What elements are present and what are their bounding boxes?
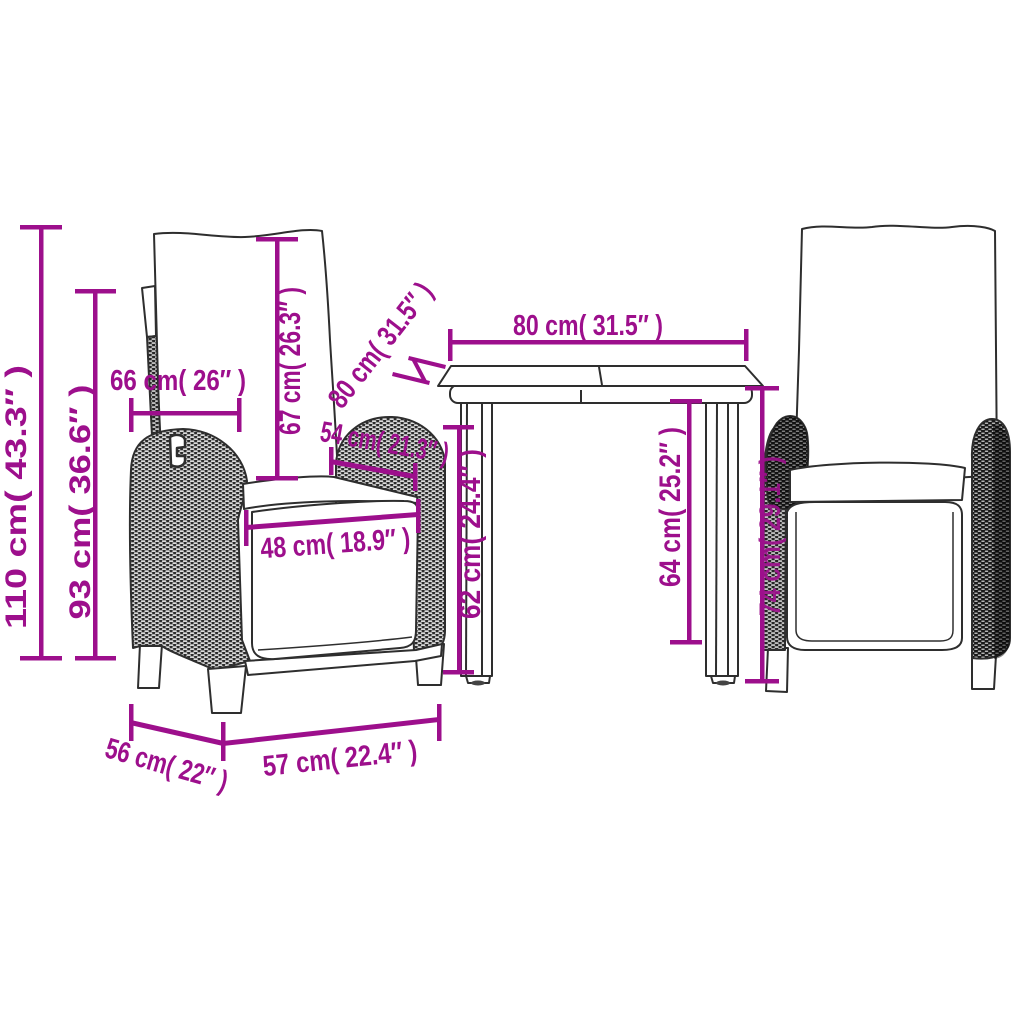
svg-text:74 cm( 29.1″ ): 74 cm( 29.1″ ) — [754, 456, 787, 616]
svg-text:110 cm( 43.3″ ): 110 cm( 43.3″ ) — [0, 365, 33, 629]
svg-text:80 cm( 31.5″ ): 80 cm( 31.5″ ) — [513, 310, 663, 342]
svg-text:66 cm( 26″ ): 66 cm( 26″ ) — [110, 365, 246, 397]
svg-text:62 cm( 24.4″ ): 62 cm( 24.4″ ) — [454, 449, 487, 619]
svg-text:93 cm( 36.6″ ): 93 cm( 36.6″ ) — [64, 385, 97, 620]
svg-text:67 cm( 26.3″ ): 67 cm( 26.3″ ) — [274, 287, 307, 435]
svg-text:64 cm( 25.2″ ): 64 cm( 25.2″ ) — [654, 427, 687, 587]
